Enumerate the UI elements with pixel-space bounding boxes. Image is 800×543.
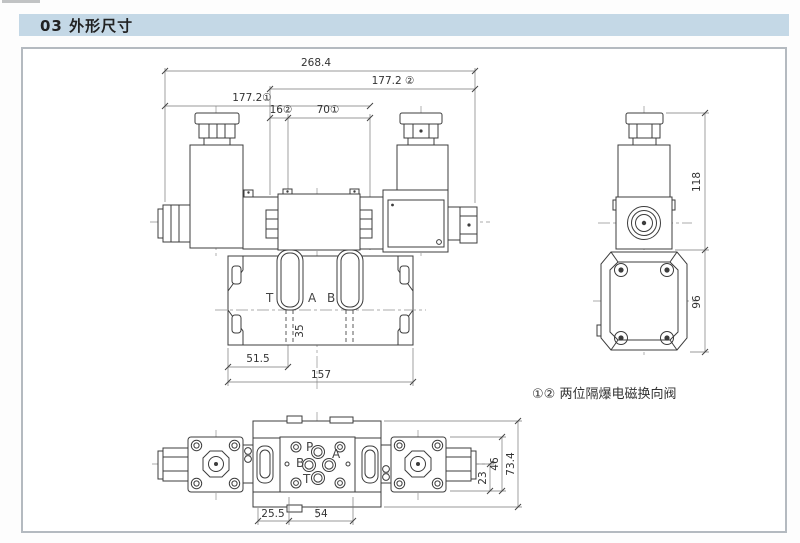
plan-view: P A B T <box>152 412 522 525</box>
drawing-note: ①② 两位隔爆电磁换向阀 <box>532 386 676 402</box>
note-text: ①② 两位隔爆电磁换向阀 <box>532 386 676 402</box>
plan-port-p: P <box>306 440 313 454</box>
dim-46: 46 <box>489 457 501 471</box>
plan-port-t: T <box>302 472 311 486</box>
dim-base-depth: 35 <box>294 324 306 337</box>
dim-offset-70: 70① <box>317 104 340 116</box>
plan-port-b: B <box>296 456 304 470</box>
dim-base-width: 157 <box>311 369 331 381</box>
front-port-a: A <box>308 291 317 305</box>
side-view: 118 96 <box>593 106 709 358</box>
front-port-t: T <box>265 291 274 305</box>
dim-23: 23 <box>477 471 489 484</box>
dim-overall-width: 268.4 <box>301 57 331 69</box>
dim-port-offset: 51.5 <box>246 353 269 365</box>
dim-offset-25-5: 25.5 <box>261 508 284 520</box>
dim-offset-16: 16② <box>270 104 293 116</box>
dimension-drawing: 268.4 177.2 ② 177.2① 16② 70① <box>0 0 800 543</box>
plan-port-a: A <box>332 447 341 461</box>
dim-total-height: 118 <box>691 172 703 192</box>
dim-width-variant2: 177.2 ② <box>372 75 415 87</box>
dim-73-4: 73.4 <box>505 452 517 476</box>
front-port-b: B <box>327 291 335 305</box>
dim-offset-54: 54 <box>314 508 328 520</box>
dim-base-height: 96 <box>691 295 703 309</box>
front-view: 268.4 177.2 ② 177.2① 16② 70① <box>150 57 490 392</box>
dim-width-variant1: 177.2① <box>232 92 271 104</box>
